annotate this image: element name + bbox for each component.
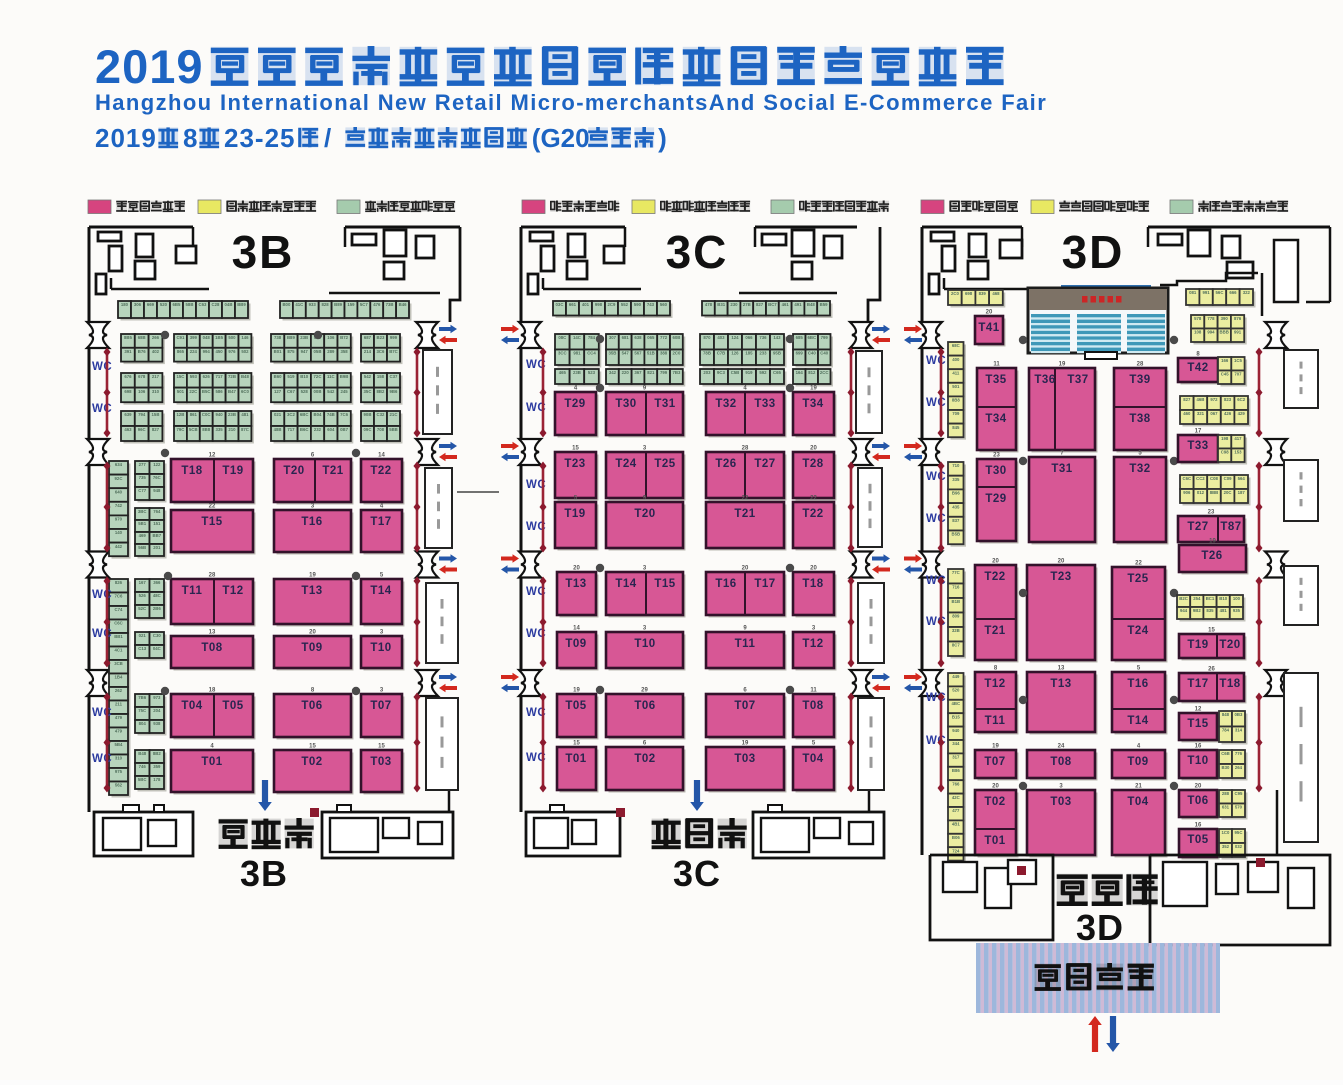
- svg-text:106: 106: [327, 335, 335, 340]
- svg-text:T31: T31: [654, 398, 675, 410]
- svg-text:T06: T06: [634, 700, 655, 712]
- svg-text:7C6: 7C6: [340, 412, 348, 417]
- svg-text:233: 233: [759, 351, 767, 356]
- svg-text:B30: B30: [1222, 765, 1230, 770]
- svg-text:310: 310: [152, 389, 160, 394]
- svg-text:T29: T29: [564, 398, 585, 410]
- svg-text:461: 461: [782, 302, 790, 307]
- svg-text:307: 307: [609, 335, 617, 340]
- svg-text:6BC: 6BC: [300, 412, 309, 417]
- svg-text:T12: T12: [222, 585, 243, 597]
- svg-text:T35: T35: [985, 374, 1006, 386]
- svg-text:19: 19: [810, 386, 817, 392]
- svg-text:743: 743: [647, 302, 655, 307]
- svg-text:T04: T04: [181, 700, 202, 712]
- svg-text:(G20: (G20: [532, 123, 590, 153]
- svg-text:48B: 48B: [274, 427, 282, 432]
- svg-text:0B3: 0B3: [1235, 712, 1243, 717]
- svg-text:717: 717: [287, 427, 295, 432]
- svg-text:178: 178: [153, 777, 161, 782]
- svg-text:794: 794: [138, 412, 146, 417]
- svg-text:230: 230: [730, 302, 738, 307]
- svg-text:WC: WC: [926, 355, 946, 367]
- svg-text:14: 14: [573, 626, 580, 632]
- svg-text:T14: T14: [1127, 715, 1148, 727]
- svg-text:35B: 35B: [608, 351, 616, 356]
- svg-text:402: 402: [152, 349, 160, 354]
- svg-text:126: 126: [731, 351, 739, 356]
- svg-text:14C: 14C: [573, 335, 581, 340]
- svg-text:T27: T27: [754, 458, 775, 470]
- svg-text:92C: 92C: [115, 476, 123, 481]
- svg-text:631: 631: [1222, 805, 1230, 810]
- svg-text:41C: 41C: [295, 302, 303, 307]
- svg-text:04B: 04B: [225, 302, 233, 307]
- svg-text:481: 481: [241, 412, 249, 417]
- svg-text:3C6: 3C6: [377, 349, 385, 354]
- svg-text:848: 848: [1222, 712, 1230, 717]
- svg-text:214: 214: [364, 349, 372, 354]
- svg-text:23B: 23B: [228, 412, 236, 417]
- svg-text:827: 827: [1183, 397, 1191, 402]
- svg-text:1B5: 1B5: [215, 335, 223, 340]
- svg-text:938: 938: [153, 721, 161, 726]
- svg-text:9C3: 9C3: [717, 370, 725, 375]
- svg-text:C5B: C5B: [731, 370, 740, 375]
- svg-text:95C: 95C: [1235, 830, 1243, 835]
- svg-text:5BC: 5BC: [138, 777, 147, 782]
- svg-text:20C: 20C: [1224, 490, 1232, 495]
- svg-text:11: 11: [993, 362, 1000, 368]
- svg-text:4C1: 4C1: [115, 648, 123, 653]
- svg-text:T19: T19: [564, 508, 585, 520]
- svg-text:634: 634: [115, 462, 123, 467]
- svg-text:245: 245: [341, 389, 349, 394]
- svg-text:C65: C65: [773, 370, 781, 375]
- svg-text:20: 20: [309, 630, 316, 636]
- svg-text:578: 578: [1194, 316, 1202, 321]
- svg-text:79C: 79C: [176, 427, 184, 432]
- svg-text:067: 067: [1210, 411, 1218, 416]
- svg-text:27B: 27B: [743, 302, 751, 307]
- svg-text:465: 465: [559, 370, 567, 375]
- svg-text:626: 626: [203, 374, 211, 379]
- svg-text:167: 167: [139, 580, 147, 585]
- svg-text:20: 20: [1058, 559, 1065, 565]
- svg-text:519: 519: [287, 374, 295, 379]
- svg-text:224: 224: [190, 349, 198, 354]
- svg-text:20: 20: [1195, 784, 1202, 790]
- svg-text:1C0: 1C0: [1222, 830, 1230, 835]
- svg-text:B89: B89: [287, 335, 295, 340]
- svg-text:T09: T09: [1127, 756, 1148, 768]
- svg-text:T16: T16: [1127, 678, 1148, 690]
- svg-text:T25: T25: [1127, 573, 1148, 585]
- svg-text:604: 604: [327, 427, 335, 432]
- svg-text:72B: 72B: [228, 374, 236, 379]
- svg-text:972: 972: [1210, 397, 1218, 402]
- svg-text:T02: T02: [984, 796, 1005, 808]
- svg-text:709: 709: [952, 411, 960, 416]
- svg-text:T01: T01: [201, 756, 222, 768]
- svg-text:T36: T36: [1034, 374, 1055, 386]
- svg-text:03C: 03C: [556, 302, 564, 307]
- svg-text:T24: T24: [615, 458, 636, 470]
- svg-text:T32: T32: [1129, 463, 1150, 475]
- svg-text:C40: C40: [820, 351, 828, 356]
- svg-text:8B2: 8B2: [377, 389, 385, 394]
- svg-text:23B: 23B: [300, 335, 308, 340]
- svg-text:526: 526: [139, 593, 147, 598]
- svg-text:306: 306: [134, 302, 142, 307]
- svg-text:277: 277: [139, 462, 147, 467]
- svg-text:T27: T27: [1187, 521, 1208, 533]
- svg-text:5B1: 5B1: [138, 521, 146, 526]
- svg-text:479: 479: [115, 715, 123, 720]
- svg-text:T34: T34: [802, 398, 823, 410]
- svg-text:75C: 75C: [138, 708, 146, 713]
- svg-text:B7C: B7C: [389, 349, 398, 354]
- svg-text:B48: B48: [807, 302, 815, 307]
- svg-text:WC: WC: [926, 513, 946, 525]
- svg-text:C7B: C7B: [717, 351, 726, 356]
- svg-text:T08: T08: [1050, 756, 1071, 768]
- svg-text:C32: C32: [377, 412, 385, 417]
- svg-text:520: 520: [160, 302, 168, 307]
- svg-text:74B: 74B: [327, 412, 335, 417]
- svg-text:T04: T04: [802, 753, 823, 765]
- svg-text:T18: T18: [802, 578, 823, 590]
- svg-text:6B5: 6B5: [173, 302, 181, 307]
- svg-text:68C: 68C: [952, 343, 960, 348]
- svg-text:994: 994: [203, 349, 211, 354]
- svg-text:478: 478: [705, 302, 713, 307]
- svg-text:22: 22: [742, 496, 749, 502]
- svg-text:187: 187: [1238, 490, 1246, 495]
- svg-text:185: 185: [745, 351, 753, 356]
- svg-text:520: 520: [952, 688, 960, 693]
- svg-text:22: 22: [810, 496, 817, 502]
- svg-text:WC: WC: [92, 589, 112, 601]
- svg-text:T12: T12: [802, 638, 823, 650]
- svg-text:B76: B76: [138, 349, 146, 354]
- svg-text:19: 19: [1059, 362, 1066, 368]
- svg-text:772: 772: [660, 335, 668, 340]
- svg-text:32B: 32B: [952, 628, 960, 633]
- svg-text:342: 342: [609, 370, 617, 375]
- svg-text:0B7: 0B7: [340, 427, 348, 432]
- svg-text:20: 20: [992, 559, 999, 565]
- svg-text:B15: B15: [952, 714, 960, 719]
- svg-text:678: 678: [138, 374, 146, 379]
- svg-text:46B: 46B: [1196, 397, 1204, 402]
- svg-text:552: 552: [621, 302, 629, 307]
- svg-text:56B: 56B: [138, 545, 146, 550]
- svg-text:19: 19: [309, 573, 316, 579]
- svg-text:14: 14: [378, 453, 385, 459]
- svg-text:429: 429: [1238, 411, 1246, 416]
- svg-text:564: 564: [1238, 476, 1246, 481]
- svg-text:CC4: CC4: [587, 351, 596, 356]
- svg-text:865: 865: [177, 349, 185, 354]
- svg-text:60B: 60B: [672, 335, 680, 340]
- svg-text:15: 15: [572, 446, 579, 452]
- svg-text:469: 469: [139, 533, 147, 538]
- svg-text:19: 19: [1209, 539, 1216, 545]
- svg-text:736: 736: [759, 335, 767, 340]
- svg-text:20: 20: [742, 566, 749, 572]
- svg-text:477: 477: [952, 808, 960, 813]
- svg-text:716: 716: [952, 585, 960, 590]
- svg-text:746: 746: [139, 764, 147, 769]
- svg-text:661: 661: [569, 302, 577, 307]
- svg-text:T01: T01: [565, 753, 586, 765]
- svg-text:11: 11: [810, 688, 817, 694]
- svg-text:344: 344: [952, 741, 960, 746]
- svg-text:310: 310: [115, 756, 123, 761]
- svg-text:T13: T13: [565, 578, 586, 590]
- svg-text:T07: T07: [734, 700, 755, 712]
- svg-text:638: 638: [634, 335, 642, 340]
- svg-text:B48: B48: [241, 374, 249, 379]
- svg-text:666: 666: [1229, 290, 1237, 295]
- svg-text:T30: T30: [615, 398, 636, 410]
- svg-text:784: 784: [1222, 728, 1230, 733]
- svg-text:9B2: 9B2: [1193, 608, 1201, 613]
- svg-text:B2C: B2C: [1179, 596, 1188, 601]
- svg-text:738: 738: [274, 335, 282, 340]
- svg-text:491: 491: [794, 302, 802, 307]
- svg-text:19: 19: [742, 741, 749, 747]
- svg-text:T11: T11: [985, 715, 1006, 727]
- svg-text:T30: T30: [985, 465, 1006, 477]
- svg-text:C6B: C6B: [1221, 751, 1230, 756]
- svg-text:B5C: B5C: [202, 389, 211, 394]
- svg-text:28: 28: [742, 446, 749, 452]
- svg-text:8B8: 8B8: [952, 398, 960, 403]
- svg-text:T03: T03: [370, 756, 391, 768]
- svg-text:322: 322: [1243, 290, 1251, 295]
- svg-text:B10: B10: [1219, 596, 1227, 601]
- svg-text:870: 870: [703, 335, 711, 340]
- svg-text:4B1: 4B1: [952, 822, 960, 827]
- svg-text:032: 032: [1235, 844, 1243, 849]
- svg-text:479: 479: [115, 729, 123, 734]
- svg-text:76C: 76C: [153, 475, 161, 480]
- svg-text:335: 335: [216, 427, 224, 432]
- svg-text:232: 232: [314, 427, 322, 432]
- svg-text:8B2: 8B2: [153, 751, 161, 756]
- svg-text:12: 12: [209, 453, 216, 459]
- svg-text:106: 106: [138, 389, 146, 394]
- svg-text:7B6: 7B6: [138, 695, 146, 700]
- svg-text:502: 502: [241, 349, 249, 354]
- svg-text:3D: 3D: [1076, 907, 1124, 948]
- svg-text:23-25: 23-25: [224, 123, 296, 153]
- svg-text:528: 528: [301, 389, 309, 394]
- svg-text:48C: 48C: [153, 593, 161, 598]
- svg-text:3C: 3C: [673, 853, 721, 894]
- svg-text:317: 317: [952, 755, 960, 760]
- svg-text:708: 708: [377, 427, 385, 432]
- svg-text:T09: T09: [565, 638, 586, 650]
- svg-text:500: 500: [228, 335, 236, 340]
- svg-text:T21: T21: [322, 465, 343, 477]
- svg-text:933: 933: [309, 302, 317, 307]
- svg-text:B96: B96: [952, 491, 960, 496]
- svg-text:T34: T34: [985, 413, 1006, 425]
- svg-text:BB1: BB1: [114, 634, 123, 639]
- svg-text:764: 764: [153, 509, 161, 514]
- svg-text:335: 335: [952, 477, 960, 482]
- svg-text:217: 217: [152, 374, 160, 379]
- svg-text:288: 288: [1222, 791, 1230, 796]
- svg-text:827: 827: [756, 302, 764, 307]
- svg-text:77C: 77C: [952, 570, 960, 575]
- svg-text:826: 826: [115, 580, 123, 585]
- svg-text:401: 401: [582, 302, 590, 307]
- svg-text:776: 776: [1235, 751, 1243, 756]
- svg-text:T16: T16: [301, 516, 322, 528]
- svg-text:T16: T16: [715, 578, 736, 590]
- svg-text:823: 823: [1224, 397, 1232, 402]
- svg-text:C0C: C0C: [202, 412, 211, 417]
- svg-text:C77: C77: [138, 488, 146, 493]
- svg-text:22C: 22C: [189, 389, 197, 394]
- svg-text:C28: C28: [212, 302, 220, 307]
- svg-text:590: 590: [634, 302, 642, 307]
- svg-text:23B: 23B: [573, 370, 581, 375]
- svg-text:C09: C09: [1224, 476, 1232, 481]
- svg-text:562: 562: [115, 783, 123, 788]
- svg-text:944: 944: [1180, 608, 1188, 613]
- svg-text:B89: B89: [334, 302, 342, 307]
- svg-text:766: 766: [952, 781, 960, 786]
- svg-text:T37: T37: [1067, 374, 1088, 386]
- svg-text:391: 391: [124, 349, 132, 354]
- svg-text:00B: 00B: [314, 389, 322, 394]
- svg-text:15B: 15B: [152, 412, 160, 417]
- svg-text:809: 809: [952, 614, 960, 619]
- svg-text:724: 724: [952, 848, 960, 853]
- svg-text:T17: T17: [1187, 678, 1208, 690]
- svg-text:CC2: CC2: [1196, 476, 1205, 481]
- svg-text:8: 8: [183, 123, 197, 153]
- svg-text:C08: C08: [1210, 476, 1218, 481]
- svg-text:8B5: 8B5: [124, 335, 132, 340]
- svg-text:15: 15: [573, 741, 580, 747]
- svg-text:T19: T19: [222, 465, 243, 477]
- svg-text:BB7: BB7: [152, 533, 161, 538]
- svg-text:51B: 51B: [647, 351, 655, 356]
- svg-text:417: 417: [1234, 436, 1242, 441]
- svg-text:3B: 3B: [240, 853, 288, 894]
- svg-text:735: 735: [139, 475, 147, 480]
- svg-text:685: 685: [796, 335, 804, 340]
- svg-text:T07: T07: [984, 756, 1005, 768]
- svg-text:220: 220: [622, 370, 630, 375]
- svg-text:T05: T05: [222, 700, 243, 712]
- svg-text:450: 450: [216, 349, 224, 354]
- svg-text:24: 24: [1058, 744, 1065, 750]
- svg-text:153: 153: [1234, 450, 1242, 455]
- svg-text:15: 15: [1208, 628, 1215, 634]
- svg-text:198: 198: [1221, 436, 1229, 441]
- svg-text:140: 140: [115, 530, 123, 535]
- svg-text:23: 23: [993, 453, 1000, 459]
- svg-text:C45: C45: [1221, 372, 1229, 377]
- svg-text:Hangzhou International New Ret: Hangzhou International New Retail Micro-…: [95, 90, 1047, 115]
- svg-text:T19: T19: [1187, 639, 1208, 651]
- svg-text:970: 970: [115, 517, 123, 522]
- svg-text:WC: WC: [92, 628, 112, 640]
- svg-text:411: 411: [952, 370, 960, 375]
- svg-text:994: 994: [1207, 330, 1215, 335]
- svg-text:T14: T14: [370, 585, 391, 597]
- svg-text:18: 18: [209, 688, 216, 694]
- svg-text:B72: B72: [340, 335, 348, 340]
- svg-text:827: 827: [152, 427, 160, 432]
- svg-text:T20: T20: [1219, 639, 1240, 651]
- svg-text:T09: T09: [301, 642, 322, 654]
- svg-text:403: 403: [717, 335, 725, 340]
- svg-text:BB9: BB9: [237, 302, 246, 307]
- svg-text:/: /: [324, 123, 331, 153]
- svg-text:BC1: BC1: [1206, 596, 1215, 601]
- svg-text:501: 501: [952, 384, 960, 389]
- svg-text:146: 146: [241, 335, 249, 340]
- svg-text:B6C: B6C: [300, 427, 309, 432]
- svg-text:C13: C13: [138, 646, 146, 651]
- svg-text:T39: T39: [1129, 374, 1150, 386]
- svg-text:T26: T26: [1201, 550, 1222, 562]
- svg-text:B10: B10: [300, 374, 308, 379]
- svg-text:15: 15: [378, 744, 385, 750]
- svg-text:16: 16: [1195, 823, 1202, 829]
- svg-text:28: 28: [1137, 362, 1144, 368]
- svg-text:264: 264: [1235, 765, 1243, 770]
- svg-text:2C0: 2C0: [951, 291, 959, 296]
- svg-text:T23: T23: [564, 458, 585, 470]
- svg-text:359: 359: [153, 764, 161, 769]
- svg-text:T04: T04: [1127, 796, 1148, 808]
- svg-text:669: 669: [147, 302, 155, 307]
- svg-text:400: 400: [952, 357, 960, 362]
- svg-text:22: 22: [1135, 561, 1142, 567]
- svg-text:687: 687: [364, 335, 372, 340]
- svg-text:T18: T18: [1219, 678, 1240, 690]
- svg-text:3CB: 3CB: [114, 661, 123, 666]
- svg-text:122: 122: [153, 462, 161, 467]
- svg-text:15: 15: [309, 744, 316, 750]
- svg-text:266: 266: [152, 335, 160, 340]
- svg-text:T17: T17: [754, 578, 775, 590]
- svg-text:143: 143: [773, 335, 781, 340]
- svg-text:B00: B00: [282, 302, 290, 307]
- svg-text:1B4: 1B4: [115, 675, 123, 680]
- svg-text:717: 717: [216, 374, 224, 379]
- svg-text:919: 919: [745, 370, 753, 375]
- svg-text:20: 20: [810, 566, 817, 572]
- svg-text:T08: T08: [802, 700, 823, 712]
- svg-text:12: 12: [1195, 707, 1202, 713]
- svg-text:T21: T21: [984, 625, 1005, 637]
- svg-text:T26: T26: [715, 458, 736, 470]
- svg-text:T10: T10: [1187, 755, 1208, 767]
- svg-text:T20: T20: [283, 465, 304, 477]
- svg-text:B47: B47: [228, 389, 236, 394]
- svg-text:8BB: 8BB: [1210, 490, 1219, 495]
